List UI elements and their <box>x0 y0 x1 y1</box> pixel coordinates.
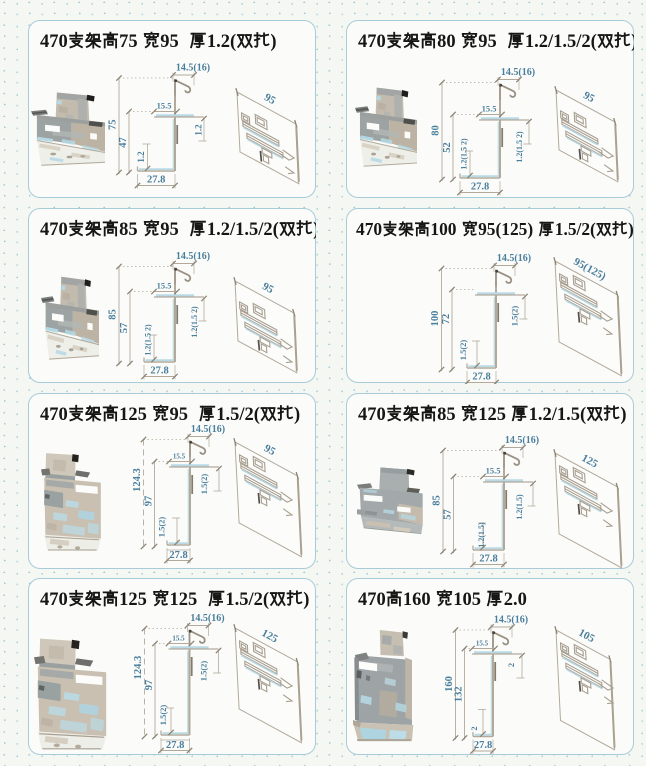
svg-text:1.2: 1.2 <box>194 123 204 135</box>
svg-text:125: 125 <box>478 405 506 425</box>
svg-text:85: 85 <box>119 220 138 240</box>
svg-text:100: 100 <box>430 310 441 326</box>
svg-text:95: 95 <box>581 89 597 105</box>
svg-text:95: 95 <box>260 280 276 296</box>
svg-text:95: 95 <box>262 442 278 458</box>
svg-text:1.2(1.5): 1.2(1.5) <box>477 522 486 548</box>
svg-text:470: 470 <box>356 219 382 239</box>
svg-text:95: 95 <box>478 32 497 52</box>
svg-text:15.5: 15.5 <box>486 466 501 476</box>
svg-text:97: 97 <box>144 679 155 690</box>
svg-text:132: 132 <box>453 686 464 702</box>
svg-text:1.2(1.5 2): 1.2(1.5 2) <box>144 324 153 356</box>
svg-text:100: 100 <box>430 219 456 239</box>
svg-text:1.2(1.5): 1.2(1.5) <box>515 494 524 520</box>
svg-text:27.8: 27.8 <box>147 174 165 185</box>
svg-text:105: 105 <box>453 590 481 610</box>
svg-text:2: 2 <box>469 726 479 730</box>
svg-text:57: 57 <box>119 322 130 333</box>
svg-text:1.2/1.5/2(: 1.2/1.5/2( <box>525 32 597 52</box>
svg-text:1.5/2(: 1.5/2( <box>555 219 596 239</box>
svg-text:15.5: 15.5 <box>173 453 186 461</box>
svg-text:470: 470 <box>40 405 68 425</box>
svg-text:27.8: 27.8 <box>471 181 489 192</box>
svg-text:75: 75 <box>119 32 138 52</box>
svg-text:72: 72 <box>441 313 452 324</box>
svg-text:): ) <box>628 219 634 239</box>
svg-text:95: 95 <box>160 32 179 52</box>
svg-text:470: 470 <box>358 405 386 425</box>
svg-text:27.8: 27.8 <box>169 550 187 561</box>
svg-text:15.5: 15.5 <box>172 634 185 642</box>
svg-text:15.5: 15.5 <box>157 100 172 110</box>
svg-text:1.2(1.5 2): 1.2(1.5 2) <box>515 131 524 163</box>
svg-text:2: 2 <box>506 662 516 666</box>
svg-text:1.2/1.5(: 1.2/1.5( <box>529 405 587 425</box>
svg-text:): ) <box>631 32 634 52</box>
svg-text:1.2/1.5/2(: 1.2/1.5/2( <box>207 220 279 240</box>
svg-text:125: 125 <box>119 405 147 425</box>
svg-text:1.5/2(: 1.5/2( <box>216 405 260 425</box>
svg-text:95(125): 95(125) <box>478 219 533 239</box>
svg-text:470: 470 <box>40 220 68 240</box>
svg-text:1.5(2): 1.5(2) <box>458 339 468 360</box>
svg-text:): ) <box>303 590 309 610</box>
svg-text:1.5(2): 1.5(2) <box>510 305 520 326</box>
svg-text:1.5(2): 1.5(2) <box>199 660 209 681</box>
svg-text:1.2: 1.2 <box>136 150 146 162</box>
svg-text:1.5(2): 1.5(2) <box>157 517 167 538</box>
svg-text:52: 52 <box>442 142 453 153</box>
svg-text:85: 85 <box>437 405 456 425</box>
svg-text:470: 470 <box>358 32 386 52</box>
svg-text:1.5(2): 1.5(2) <box>199 474 209 495</box>
svg-text:85: 85 <box>432 495 443 506</box>
svg-text:95: 95 <box>262 91 278 107</box>
svg-text:14.5(16): 14.5(16) <box>190 613 224 624</box>
svg-text:124.3: 124.3 <box>132 468 143 492</box>
svg-text:): ) <box>620 405 626 425</box>
svg-text:14.5(16): 14.5(16) <box>501 67 535 78</box>
svg-text:1.2(1.5 2): 1.2(1.5 2) <box>460 138 469 170</box>
svg-text:27.8: 27.8 <box>150 365 168 376</box>
svg-text:14.5(16): 14.5(16) <box>497 253 531 264</box>
svg-text:160: 160 <box>403 590 431 610</box>
svg-text:27.8: 27.8 <box>479 554 497 565</box>
svg-text:14.5(16): 14.5(16) <box>176 62 210 73</box>
svg-text:95: 95 <box>170 405 189 425</box>
svg-text:97: 97 <box>144 496 155 507</box>
svg-text:47: 47 <box>118 137 129 148</box>
svg-text:14.5(16): 14.5(16) <box>176 251 210 262</box>
svg-text:125: 125 <box>170 590 198 610</box>
svg-text:2.0: 2.0 <box>504 590 527 610</box>
svg-text:14.5(16): 14.5(16) <box>494 614 528 625</box>
svg-text:80: 80 <box>437 32 456 52</box>
svg-text:15.5: 15.5 <box>157 280 172 290</box>
svg-text:85: 85 <box>108 309 119 320</box>
svg-text:124.3: 124.3 <box>133 655 144 679</box>
svg-text:27.8: 27.8 <box>474 740 492 751</box>
svg-text:): ) <box>270 32 276 52</box>
svg-text:15.5: 15.5 <box>476 639 489 647</box>
svg-text:80: 80 <box>431 125 442 136</box>
svg-text:95: 95 <box>160 220 179 240</box>
svg-text:): ) <box>313 220 316 240</box>
svg-text:14.5(16): 14.5(16) <box>505 435 539 446</box>
svg-text:470: 470 <box>358 590 386 610</box>
svg-text:15.5: 15.5 <box>482 103 497 113</box>
svg-text:470: 470 <box>40 590 68 610</box>
svg-text:57: 57 <box>443 509 454 520</box>
svg-text:75: 75 <box>108 119 119 130</box>
svg-text:1.5(2): 1.5(2) <box>158 704 168 725</box>
svg-text:): ) <box>294 405 300 425</box>
svg-text:470: 470 <box>40 32 68 52</box>
svg-text:1.5/2(: 1.5/2( <box>225 590 269 610</box>
svg-text:27.8: 27.8 <box>166 740 184 751</box>
svg-text:27.8: 27.8 <box>472 371 490 382</box>
svg-text:1.2(: 1.2( <box>207 32 236 52</box>
svg-text:14.5(16): 14.5(16) <box>191 424 225 435</box>
svg-text:125: 125 <box>119 590 147 610</box>
svg-text:1.2(1.5 2): 1.2(1.5 2) <box>190 306 199 338</box>
